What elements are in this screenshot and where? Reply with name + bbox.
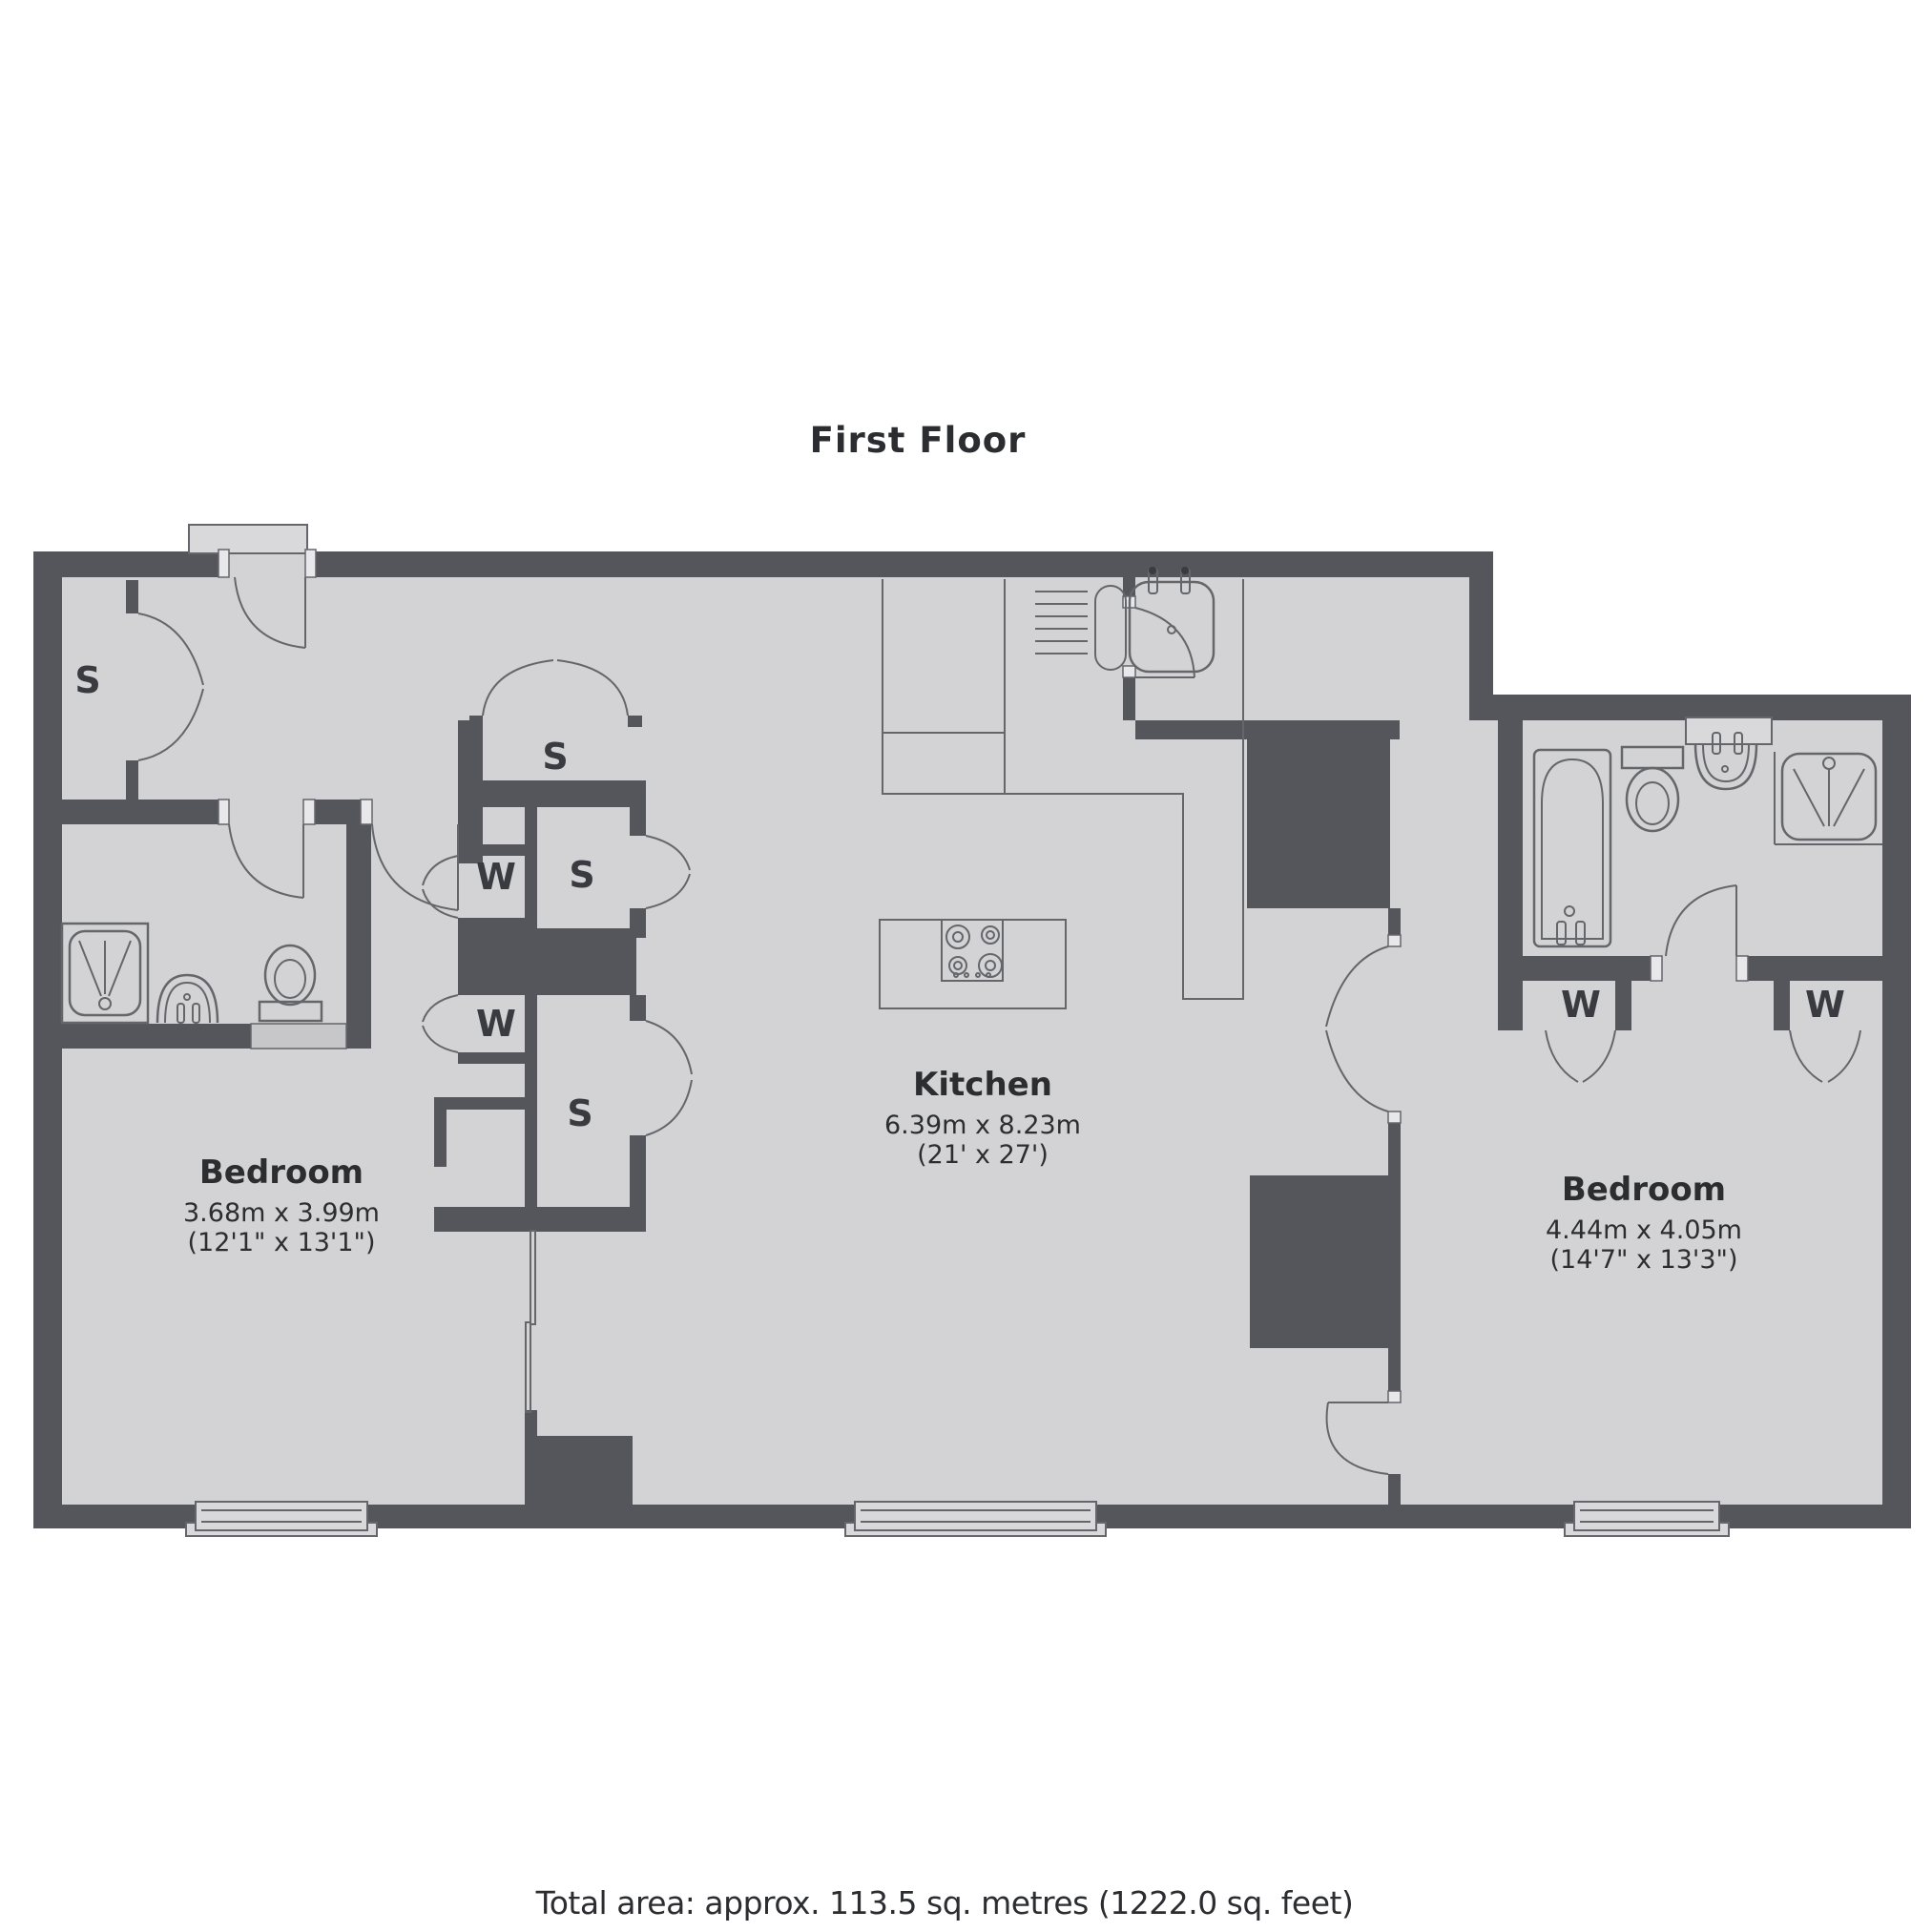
room-dims-metric-kitchen: 6.39m x 8.23m	[884, 1111, 1081, 1140]
service-core	[1247, 730, 1390, 908]
total-area-caption: Total area: approx. 113.5 sq. metres (12…	[535, 1884, 1354, 1922]
page-title: First Floor	[810, 420, 1027, 461]
room-dims-metric-bedroom-right: 4.44m x 4.05m	[1546, 1215, 1742, 1245]
closet-label-store-middle: S	[569, 854, 594, 896]
room-dims-metric-bedroom-left: 3.68m x 3.99m	[183, 1198, 380, 1228]
toilet-ledge	[251, 1024, 346, 1049]
room-dims-imperial-bedroom-left: (12'1" x 13'1")	[188, 1228, 376, 1257]
room-label-bedroom-left: Bedroom	[199, 1153, 364, 1192]
wardrobe-block	[1250, 1175, 1388, 1348]
entry-threshold	[189, 525, 307, 553]
floor-plan: First Floor Bedroom3.68m x 3.99m(12'1" x…	[0, 0, 1932, 1932]
service-duct	[458, 928, 636, 995]
window	[845, 1502, 1106, 1536]
closet-label-store-hall-left: S	[74, 659, 100, 701]
closet-label-store-top: S	[542, 736, 568, 778]
floor-plan-page: First Floor Bedroom3.68m x 3.99m(12'1" x…	[0, 0, 1932, 1932]
room-label-bedroom-right: Bedroom	[1562, 1171, 1726, 1209]
room-label-kitchen: Kitchen	[913, 1066, 1052, 1104]
room-dims-imperial-bedroom-right: (14'7" x 13'3")	[1550, 1245, 1738, 1275]
window	[186, 1502, 377, 1536]
closet-label-wardrobe-lower: W	[476, 1003, 516, 1045]
bottom-pier	[525, 1436, 633, 1505]
closet-label-wardrobe-right-1: W	[1561, 984, 1601, 1026]
closet-label-store-lower: S	[567, 1092, 592, 1134]
room-dims-imperial-kitchen: (21' x 27')	[917, 1140, 1049, 1170]
window	[1565, 1502, 1729, 1536]
closet-label-wardrobe-right-2: W	[1805, 984, 1845, 1026]
closet-label-wardrobe-upper: W	[476, 856, 516, 898]
